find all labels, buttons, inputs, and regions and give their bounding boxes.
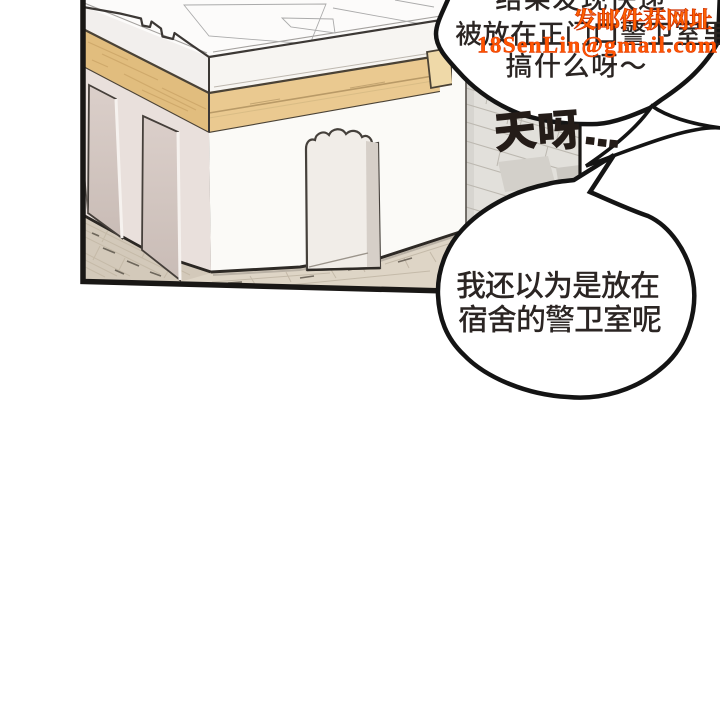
svg-text:18SenLin@gmail.com: 18SenLin@gmail.com <box>477 33 718 59</box>
